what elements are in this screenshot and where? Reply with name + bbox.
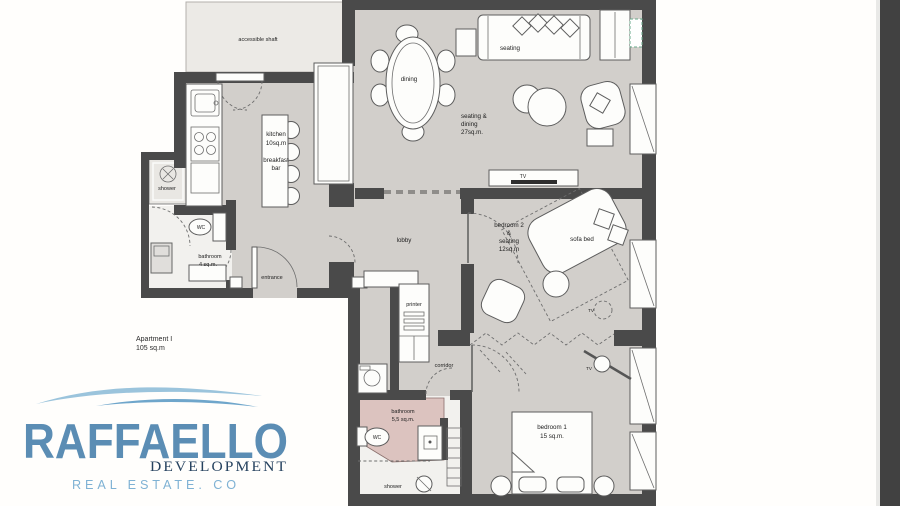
label-kitchen-area: 10sq.m	[266, 140, 286, 147]
bed-pillow	[519, 477, 546, 492]
label-sofa-bed: sofa bed	[570, 236, 594, 243]
label-living-3: 27sq.m.	[461, 129, 483, 136]
label-printer: printer	[406, 302, 422, 308]
label-accessible-shaft: accessible shaft	[238, 37, 278, 43]
label-wc-left: WC	[197, 225, 206, 231]
wall-kitchen-se-b	[329, 262, 354, 295]
label-tv-bedroom2: TV	[588, 308, 594, 313]
label-living-2: dining	[461, 121, 478, 128]
dining-chair	[371, 50, 389, 72]
dining-chair	[437, 50, 455, 72]
label-bathroom-small-2: 4 sq.m.	[199, 262, 218, 268]
label-bedroom2-3: seating	[499, 238, 520, 245]
wc-cabinet	[213, 213, 226, 241]
logo-tagline-text: REAL ESTATE. CO	[72, 477, 240, 492]
floor-plan-page: accessible shaft kitchen 10sq.m breakfas…	[0, 0, 900, 506]
label-bathroom-main-1: bathroom	[391, 409, 415, 415]
entrance-door-leaf	[252, 247, 257, 288]
wall-bedroom2-west-b	[461, 264, 474, 333]
bathroom-sink-drain	[429, 441, 432, 444]
label-seating: seating	[500, 45, 521, 52]
label-tv-living: TV	[520, 174, 527, 180]
armchair-side-table	[587, 129, 613, 146]
apartment-area: 105 sq.m	[136, 345, 165, 352]
coffee-table-large	[528, 88, 566, 126]
label-wc-main: WC	[373, 435, 382, 441]
bed-pillow	[557, 477, 584, 492]
wall-bottom-left-a	[141, 288, 253, 298]
logo-division-text: DEVELOPMENT	[150, 459, 288, 475]
apartment-name: Apartment I	[136, 336, 172, 343]
ac-unit	[630, 19, 642, 47]
wall-living-lobby-a	[355, 188, 384, 199]
label-bar: bar	[272, 165, 281, 172]
label-bedroom2-1: bedroom 2	[494, 222, 524, 229]
floor-plan-drawing: accessible shaft kitchen 10sq.m breakfas…	[0, 0, 900, 506]
label-bathroom-main-2: 5,5 sq.m.	[392, 417, 415, 423]
wall-kitchen-dining	[342, 0, 355, 66]
label-shower-left: shower	[158, 186, 176, 192]
entry-cabinet-a	[230, 277, 242, 288]
label-entrance: entrance	[261, 275, 282, 281]
label-bedroom2-4: 12sq.m	[499, 246, 519, 253]
kitchen-tall-cabinet	[314, 63, 353, 184]
wall-closet-west	[390, 281, 399, 398]
wall-kitchen-se-a	[329, 183, 354, 207]
wall-bedroom1-west	[460, 392, 472, 494]
wall-bedroom2-west-a	[461, 199, 474, 214]
apartment-title: Apartment I 105 sq.m	[136, 336, 172, 352]
label-lobby: lobby	[397, 237, 413, 244]
label-bathroom-small-1: bathroom	[198, 254, 222, 260]
pouf	[543, 271, 569, 297]
bedroom1-tv	[594, 356, 610, 372]
side-strip	[880, 0, 900, 506]
label-bedroom1-1: bedroom 1	[537, 424, 567, 431]
washing-machine	[358, 364, 387, 393]
edge-seam	[876, 0, 880, 506]
label-kitchen: kitchen	[266, 131, 286, 138]
wall-outer-left	[141, 152, 149, 298]
label-dining: dining	[401, 76, 418, 83]
label-tv-bedroom1: TV	[586, 366, 592, 371]
nightstand	[491, 476, 511, 496]
side-table	[456, 29, 476, 56]
wall-divider-b	[614, 330, 642, 346]
nightstand	[594, 476, 614, 496]
wall-top	[343, 0, 656, 10]
logo: RAFFAELLO DEVELOPMENT REAL ESTATE. CO	[23, 387, 288, 492]
label-shower-main: shower	[384, 484, 402, 490]
logo-swoosh-dark-icon	[96, 399, 258, 407]
wall-living-lobby-b	[460, 188, 642, 199]
kitchen-pass-through	[216, 73, 264, 81]
dining-table	[386, 37, 440, 129]
wall-bath-small-right-a	[226, 200, 236, 250]
label-bedroom1-2: 15 sq.m.	[540, 433, 564, 440]
label-living-1: seating &	[461, 113, 488, 120]
label-corridor: corridor	[435, 363, 454, 369]
label-breakfast: breakfast	[263, 157, 289, 164]
wall-divider-a	[438, 330, 470, 346]
tv-screen	[511, 180, 557, 184]
